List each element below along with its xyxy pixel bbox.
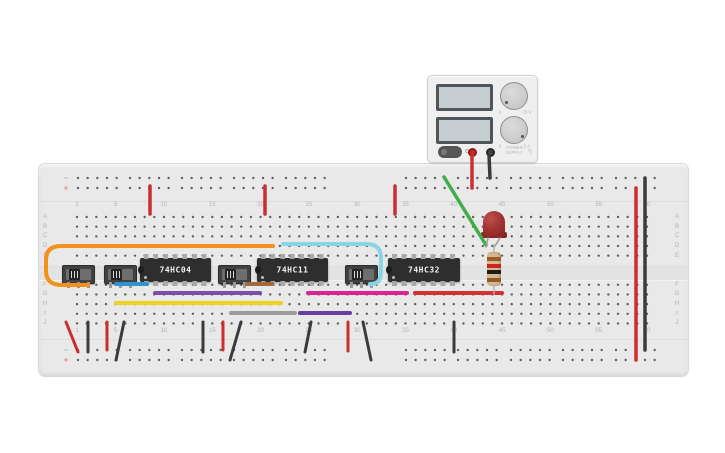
wire-green-wire[interactable] xyxy=(444,177,486,245)
wire-bottom-jumper-red-1[interactable] xyxy=(66,322,78,352)
wire-led-lead-right[interactable] xyxy=(495,238,500,246)
wire-orange-wire[interactable] xyxy=(46,246,273,285)
wire-cyan-wire[interactable] xyxy=(283,244,381,284)
wire-supply-negative-lead[interactable] xyxy=(489,155,490,178)
wire-bottom-jumper-black-4[interactable] xyxy=(230,322,241,360)
wire-led-lead-left[interactable] xyxy=(486,238,488,247)
wire-bottom-jumper-black-5[interactable] xyxy=(305,322,311,352)
wire-bottom-jumper-black-6[interactable] xyxy=(363,322,371,360)
wire-layer[interactable] xyxy=(0,0,725,453)
wire-bottom-jumper-black-2[interactable] xyxy=(116,322,124,360)
circuit-canvas: 1155101015152020252530303535404045455050… xyxy=(0,0,725,453)
